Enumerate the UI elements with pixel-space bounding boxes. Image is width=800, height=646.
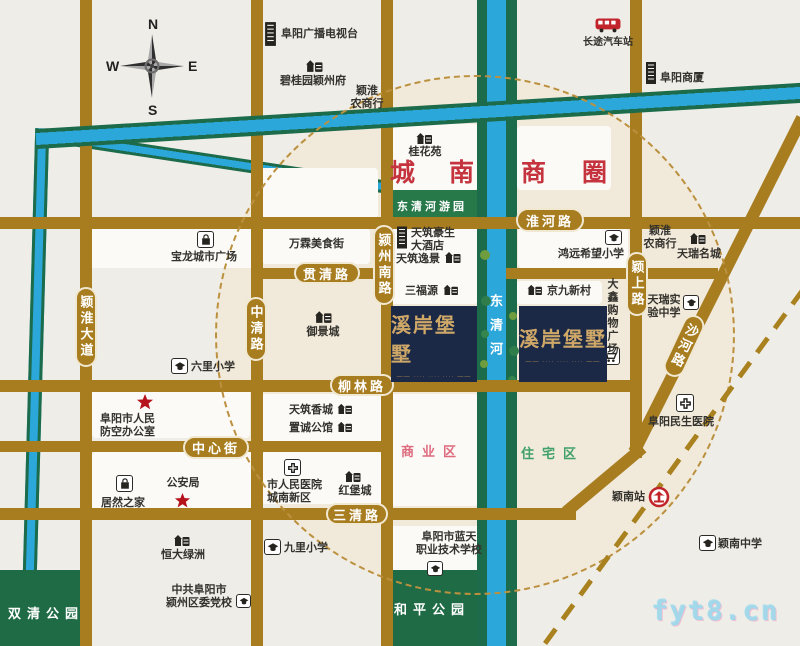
project-tagline: ···· ···· ···· bbox=[397, 374, 472, 380]
zhuzhaiqu-label: 住宅区 bbox=[521, 443, 597, 462]
lantian-vocational-school-text-line: 阜阳市蓝天 bbox=[413, 531, 485, 544]
compass-east-label: E bbox=[188, 58, 197, 74]
compass-south-label: S bbox=[148, 102, 157, 118]
build-icon bbox=[173, 533, 190, 546]
star-icon bbox=[174, 492, 191, 509]
juran-zhijia-label: 居然之家 bbox=[101, 497, 149, 510]
zhongqing-road-label-text: 中清路 bbox=[247, 305, 266, 353]
watermark: fyt8.cn bbox=[652, 596, 780, 627]
guanqing-road-label-text: 贯清路 bbox=[303, 264, 351, 283]
minsheng-hospital-text-line: 阜阳民生医院 bbox=[648, 416, 722, 429]
build-icon bbox=[442, 283, 459, 295]
shangquan-label-char: 商 bbox=[521, 153, 546, 189]
hongyuan-hope-primary-school-text-line: 鸿远希望小学 bbox=[558, 248, 624, 261]
yinghuai-rural-bank-east-text-line: 颖淮 bbox=[640, 225, 680, 238]
biguiyuan-yingzhoufu-text-line: 碧桂园颖州府 bbox=[280, 75, 352, 88]
long-distance-bus-station-label: 长途汽车站 bbox=[578, 37, 638, 49]
zhicheng-gongguan-label: 置诚公馆 bbox=[289, 422, 335, 435]
tianrui-experimental-school-label: 天瑞实验中学 bbox=[645, 294, 683, 320]
tianzhu-xiangcheng-label: 天筑香城 bbox=[289, 404, 335, 417]
guihuayuan-label: 桂花苑 bbox=[407, 146, 443, 159]
tianrui-experimental-school-text-line: 验中学 bbox=[645, 307, 683, 320]
baolong-city-plaza-text-line: 宝龙城市广场 bbox=[171, 251, 241, 264]
school-icon bbox=[605, 230, 622, 245]
sanqing-road-label-text: 三清路 bbox=[333, 505, 381, 524]
tianzhu-yijing-text-line: 天筑逸景 bbox=[396, 253, 442, 266]
liuli-primary-school-text-line: 六里小学 bbox=[191, 361, 237, 374]
civil-air-defense-office-label: 阜阳市人民防空办公室 bbox=[100, 413, 162, 439]
public-security-bureau-label: 公安局 bbox=[162, 477, 204, 490]
liulin-road-label-text: 柳林路 bbox=[338, 376, 386, 395]
yingnan-middle-school-text-line: 颖南中学 bbox=[718, 538, 766, 551]
dongqinghe-park-label: 东清河游园 bbox=[391, 198, 473, 214]
tianrui-mingcheng-text-line: 天瑞名城 bbox=[677, 248, 723, 261]
tianrui-experimental-school-text-line: 天瑞实 bbox=[645, 294, 683, 307]
tianzhu-yijing-label: 天筑逸景 bbox=[396, 253, 442, 266]
guihuayuan-text-line: 桂花苑 bbox=[407, 146, 443, 159]
build-icon bbox=[689, 231, 706, 244]
shangquan-label-char: 圈 bbox=[582, 153, 607, 189]
school-icon bbox=[699, 535, 716, 551]
hengda-lvzhou-text-line: 恒大绿洲 bbox=[161, 549, 209, 562]
school-icon bbox=[264, 539, 281, 555]
hongbaocheng-label: 红堡城 bbox=[337, 485, 373, 498]
build-icon bbox=[344, 469, 361, 482]
yujingcheng-text-line: 御景城 bbox=[303, 326, 343, 339]
juran-zhijia-text-line: 居然之家 bbox=[101, 497, 149, 510]
zhongqing-road-label: 中清路 bbox=[245, 297, 267, 361]
bag-icon bbox=[197, 231, 214, 248]
compass-north-label: N bbox=[148, 16, 158, 32]
tower-icon bbox=[645, 60, 657, 86]
project-title: 溪岸堡墅 bbox=[519, 323, 607, 352]
fuyang-tv-station-label: 阜阳广播电视台 bbox=[281, 28, 373, 41]
yujingcheng-label: 御景城 bbox=[303, 326, 343, 339]
yingzhou-party-school-label: 中共阜阳市颍州区委党校 bbox=[163, 584, 235, 610]
yingnan-station-text-line: 颖南站 bbox=[612, 491, 648, 504]
yinghuai-rural-bank-north-label: 颖淮农商行 bbox=[346, 85, 388, 111]
yinghuai-rural-bank-north-text-line: 农商行 bbox=[346, 98, 388, 111]
tianzhu-haosheng-hotel-text-line: 天筑豪生 bbox=[411, 227, 459, 240]
yinghuai-rural-bank-north-text-line: 颖淮 bbox=[346, 85, 388, 98]
biguiyuan-yingzhoufu-label: 碧桂园颖州府 bbox=[280, 75, 352, 88]
tower-icon bbox=[396, 225, 408, 250]
wanlin-food-street-text-line: 万霖美食街 bbox=[289, 238, 349, 251]
yingnan-middle-school-label: 颖南中学 bbox=[718, 538, 766, 551]
zhongxin-street-label-text: 中心街 bbox=[192, 438, 240, 457]
compass-west-label: W bbox=[106, 58, 119, 74]
yinghuai-rural-bank-east-text-line: 农商行 bbox=[640, 238, 680, 251]
yinghuai-rural-bank-east-label: 颖淮农商行 bbox=[640, 225, 680, 251]
sanfuyuan-label: 三福源 bbox=[405, 285, 441, 298]
jiuli-primary-school-label: 九里小学 bbox=[284, 542, 330, 555]
school-icon bbox=[427, 561, 443, 576]
minsheng-hospital-label: 阜阳民生医院 bbox=[648, 416, 722, 429]
compass-star-icon bbox=[120, 34, 184, 98]
long-distance-bus-station-text-line: 长途汽车站 bbox=[578, 37, 638, 49]
hospital-icon bbox=[284, 459, 301, 476]
build-icon bbox=[415, 131, 433, 144]
build-icon bbox=[526, 283, 543, 295]
yingzhou-party-school-text-line: 中共阜阳市 bbox=[163, 584, 235, 597]
lantian-vocational-school-label: 阜阳市蓝天职业技术学校 bbox=[413, 531, 485, 557]
wanlin-food-street-label: 万霖美食街 bbox=[289, 238, 349, 251]
civil-air-defense-office-text-line: 防空办公室 bbox=[100, 426, 162, 439]
jingjiu-xincun-label: 京九新村 bbox=[547, 285, 593, 298]
yingshang-road-label-text: 颖上路 bbox=[628, 260, 647, 308]
liulin-road-label: 柳林路 bbox=[330, 374, 394, 396]
tower-icon bbox=[264, 22, 277, 46]
project-tagline: ···· ···· ···· bbox=[526, 359, 601, 365]
city-peoples-hospital-south-label: 市人民医院城南新区 bbox=[267, 479, 325, 505]
build-icon bbox=[305, 58, 323, 72]
tianrui-mingcheng-label: 天瑞名城 bbox=[677, 248, 723, 261]
public-security-bureau-text-line: 公安局 bbox=[162, 477, 204, 490]
fuyang-building-label: 阜阳商厦 bbox=[660, 72, 710, 85]
project-title: 溪岸堡墅 bbox=[391, 309, 477, 367]
chengnan-label-char: 南 bbox=[449, 153, 474, 189]
compass-rose: N S W E bbox=[106, 16, 198, 116]
hongbaocheng-text-line: 红堡城 bbox=[337, 485, 373, 498]
civil-air-defense-office-text-line: 阜阳市人民 bbox=[100, 413, 162, 426]
zhongxin-street-label: 中心街 bbox=[183, 436, 249, 459]
build-icon bbox=[336, 402, 353, 414]
star-icon bbox=[136, 393, 154, 411]
shuangqing-park-label: 双清公园 bbox=[8, 603, 90, 622]
city-peoples-hospital-south-text-line: 市人民医院 bbox=[267, 479, 325, 492]
project-badge-east: 溪岸堡墅···· ···· ···· bbox=[519, 306, 607, 382]
sanqing-road-label: 三清路 bbox=[326, 503, 388, 525]
yingnan-station-label: 颖南站 bbox=[612, 491, 648, 504]
project-badge-west: 溪岸堡墅···· ···· ···· bbox=[391, 306, 477, 382]
tianzhu-xiangcheng-text-line: 天筑香城 bbox=[289, 404, 335, 417]
build-icon bbox=[336, 420, 353, 432]
hongyuan-hope-primary-school-label: 鸿远希望小学 bbox=[558, 248, 624, 261]
build-icon bbox=[314, 309, 332, 323]
fuyang-tv-station-text-line: 阜阳广播电视台 bbox=[281, 28, 373, 41]
rail-icon bbox=[648, 486, 670, 508]
sanfuyuan-text-line: 三福源 bbox=[405, 285, 441, 298]
hospital-icon bbox=[676, 394, 694, 412]
heping-park-label: 和平公园 bbox=[394, 599, 478, 618]
bag-icon bbox=[116, 475, 133, 492]
dongqinghe-river-label: 东清河 bbox=[489, 294, 505, 366]
huaihe-road-label-text: 淮河路 bbox=[526, 211, 574, 230]
jingjiu-xincun-text-line: 京九新村 bbox=[547, 285, 593, 298]
yingzhou-party-school-text-line: 颍州区委党校 bbox=[163, 597, 235, 610]
hengda-lvzhou-label: 恒大绿洲 bbox=[161, 549, 209, 562]
huaihe-road-label: 淮河路 bbox=[516, 208, 584, 232]
zhicheng-gongguan-text-line: 置诚公馆 bbox=[289, 422, 335, 435]
baolong-city-plaza-label: 宝龙城市广场 bbox=[171, 251, 241, 264]
guanqing-road-label: 贯清路 bbox=[294, 262, 360, 284]
fuyang-building-text-line: 阜阳商厦 bbox=[660, 72, 710, 85]
location-map: N S W E 万达广场 WANDA PLAZA fyt8.cn 淮河路贯清路柳… bbox=[0, 0, 800, 646]
yingzhou-south-road-label: 颍州南路 bbox=[373, 225, 395, 305]
school-icon bbox=[683, 295, 699, 310]
liuli-primary-school-label: 六里小学 bbox=[191, 361, 237, 374]
shangquan-label: 商圈 bbox=[521, 153, 607, 189]
yinghuai-avenue-label-text: 颖淮大道 bbox=[77, 295, 96, 359]
shangyequ-label: 商业区 bbox=[401, 441, 481, 460]
school-icon bbox=[236, 594, 251, 608]
yingzhou-south-road-label-text: 颍州南路 bbox=[375, 233, 394, 297]
school-icon bbox=[171, 358, 188, 374]
yinghuai-avenue-label: 颖淮大道 bbox=[75, 287, 97, 367]
city-peoples-hospital-south-text-line: 城南新区 bbox=[267, 492, 325, 505]
build-icon bbox=[444, 250, 461, 263]
bus-icon bbox=[595, 17, 621, 33]
jiuli-primary-school-text-line: 九里小学 bbox=[284, 542, 330, 555]
lantian-vocational-school-text-line: 职业技术学校 bbox=[413, 544, 485, 557]
